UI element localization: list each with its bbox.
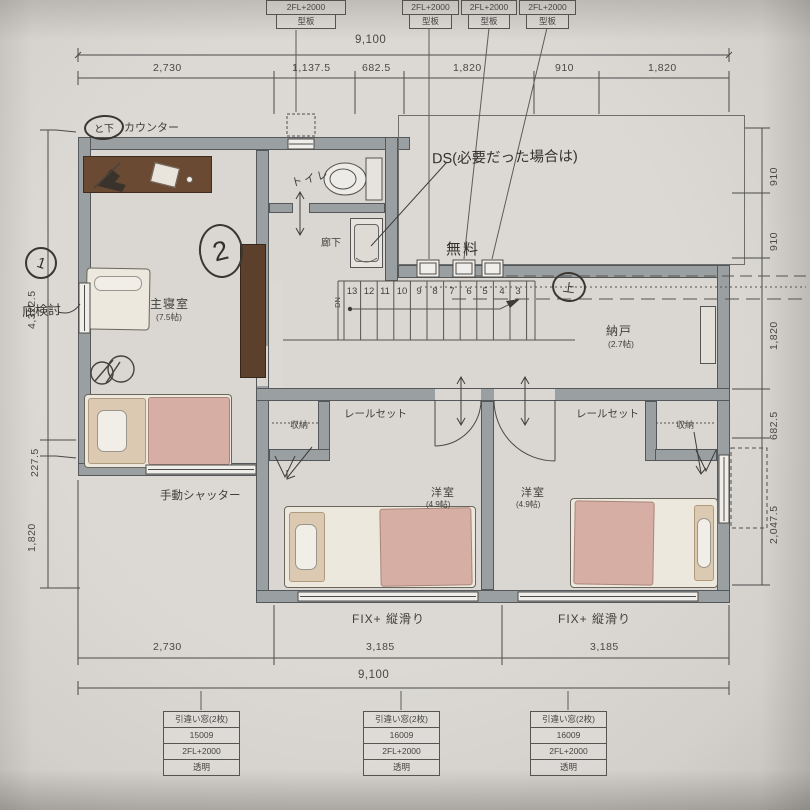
window-tag-top-4: 2FL+2000型板	[519, 0, 576, 29]
label-rail-right: レールセット	[576, 406, 639, 421]
wall-toilet-right	[385, 137, 398, 281]
window-tag-top-1: 2FL+2000型板	[266, 0, 346, 29]
room-size-master: (7.5帖)	[156, 311, 182, 323]
stair-number: 4	[494, 286, 510, 297]
stair-number: 12	[361, 286, 377, 297]
handwritten-eave-note: 庇検討	[22, 299, 62, 320]
dim-right-seg-2: 910	[768, 199, 780, 251]
stair-number: 10	[394, 286, 410, 297]
dim-top-seg-6: 1,820	[648, 62, 677, 74]
ds-duct-inner	[354, 224, 379, 262]
handwritten-free-note: 無料	[446, 238, 480, 259]
handwritten-circle-1-text: 1	[34, 254, 47, 273]
west1-bed-pillow	[295, 524, 317, 570]
window-tag-bottom-1: 引違い窓(2枚)15009 2FL+2000透明	[163, 711, 240, 776]
stair-number: 7	[444, 286, 460, 297]
room-label-hallway: 廊下	[321, 234, 341, 249]
label-shutter: 手動シャッター	[160, 487, 241, 503]
master-bed-blanket	[148, 397, 230, 465]
west2-bed-blanket	[573, 500, 654, 585]
room-size-storage: (2.7帖)	[608, 338, 634, 350]
dim-left-seg-2: 227.5	[29, 415, 41, 477]
master-bed-small-pillow	[94, 276, 142, 291]
room-label-storage: 納戸	[606, 322, 632, 339]
dim-top-seg-2: 1,137.5	[292, 62, 331, 74]
window-tag-bottom-2: 引違い窓(2枚)16009 2FL+2000透明	[363, 711, 440, 776]
handwritten-up-text: 上	[562, 278, 576, 297]
dim-right-seg-3: 1,820	[768, 290, 780, 350]
dim-bottom-seg-2: 3,185	[366, 641, 395, 653]
dim-top-seg-1: 2,730	[153, 62, 182, 74]
door-opening-west2	[494, 389, 555, 400]
dim-top	[75, 48, 732, 114]
handwritten-circle-2-text: 2	[210, 234, 232, 268]
dim-top-total: 9,100	[355, 34, 386, 46]
wall-closet-right-h	[655, 449, 717, 461]
stair-number: 5	[477, 286, 493, 297]
wall-toilet-bottom-a	[269, 203, 293, 213]
master-bed-pillow	[97, 410, 127, 452]
dim-left-seg-3: 1,820	[26, 488, 38, 552]
door-opening-west1	[435, 389, 481, 400]
label-rail-left: レールセット	[344, 406, 407, 421]
handwritten-updown: と下	[94, 119, 115, 135]
west1-bed-blanket	[379, 507, 472, 587]
label-closet-left: 収納	[290, 418, 308, 431]
wall-room-divider	[481, 401, 494, 590]
wardrobe	[240, 244, 266, 378]
stair-number: 11	[377, 286, 393, 297]
handwritten-ds-note: DS(必要だった場合は)	[432, 145, 578, 169]
dim-right-seg-4: 682.5	[768, 384, 780, 440]
stair-number: 9	[411, 286, 427, 297]
wall-closet-left-h	[269, 449, 330, 461]
label-closet-right: 収納	[676, 418, 694, 431]
dim-top-seg-3: 682.5	[362, 62, 391, 74]
room-size-west1: (4.9帖)	[426, 499, 450, 510]
stair-number: 6	[461, 286, 477, 297]
room-label-west2: 洋室	[521, 484, 545, 500]
window-tag-top-2: 2FL+2000型板	[402, 0, 459, 29]
label-counter: カウンター	[124, 119, 179, 135]
wall-top	[78, 137, 410, 150]
dim-left	[40, 130, 80, 588]
storage-shelf	[700, 306, 716, 364]
window-tag-bottom-3: 引違い窓(2枚)16009 2FL+2000透明	[530, 711, 607, 776]
room-label-master: 主寝室	[150, 295, 189, 312]
floor-plan-sheet: 2FL+2000型板 2FL+2000型板 2FL+2000型板 2FL+200…	[0, 0, 810, 810]
desk-dot	[186, 176, 193, 183]
room-size-west2: (4.9帖)	[516, 499, 540, 510]
dim-bottom-seg-3: 3,185	[590, 641, 619, 653]
wall-toilet-bottom-b	[309, 203, 385, 213]
label-fix-left: FIX+ 縦滑り	[352, 610, 425, 627]
wall-bottom	[256, 590, 730, 603]
wall-middle	[256, 388, 730, 401]
stair-number: 13	[344, 286, 360, 297]
dim-right-seg-5: 2,047.5	[768, 472, 780, 544]
dim-top-seg-4: 1,820	[453, 62, 482, 74]
dim-bottom-total: 9,100	[358, 669, 389, 681]
dim-right-seg-1: 910	[768, 134, 780, 186]
counter-desk	[83, 156, 212, 193]
handwritten-circle-1: 1	[25, 247, 57, 279]
dim-top-seg-5: 910	[555, 62, 574, 74]
label-dn: DN	[333, 297, 342, 308]
room-label-west1: 洋室	[431, 484, 455, 500]
stair-number: 8	[427, 286, 443, 297]
stair-number: 3	[510, 286, 526, 297]
dim-bottom-seg-1: 2,730	[153, 641, 182, 653]
west2-bed-pillow	[697, 518, 711, 568]
label-fix-right: FIX+ 縦滑り	[558, 610, 631, 627]
window-tag-top-3: 2FL+2000型板	[461, 0, 517, 29]
wall-right	[717, 265, 730, 603]
